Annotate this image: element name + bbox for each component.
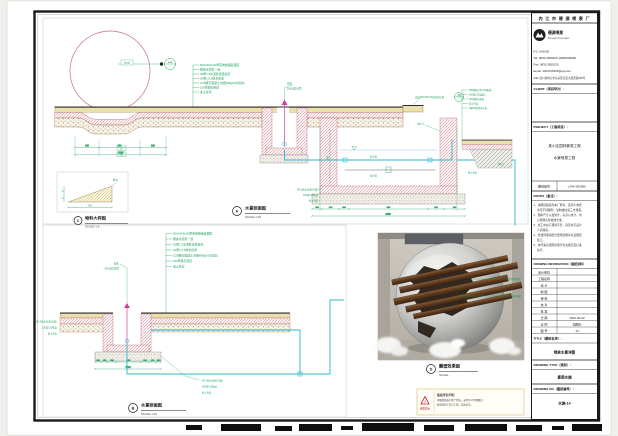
section-scale: SCALE 1:15	[245, 215, 261, 219]
supply-pipe-label: DN25给水管	[287, 87, 302, 91]
type-label: DRAWING TYPE（类别）:	[534, 362, 571, 367]
layer-label: 20厚1:2.5防水砂浆	[173, 247, 197, 252]
warning-heading: 版权所有声明：	[437, 393, 457, 397]
dim-value: 200	[88, 204, 93, 207]
warning-line2: 复制或用于其它工程，违者必究。	[437, 403, 473, 407]
layer-label: 30厚1:3水泥砂浆结合层	[200, 71, 230, 76]
title-block: 内 江 市 德 源 喷 泉 厂 德源喷泉 Deyuan Fountain P.C…	[532, 13, 598, 420]
info-row-value: 14	[575, 329, 579, 333]
dim-total: 1350	[385, 213, 391, 216]
note-line: 5、未尽事宜按国家现行有关规范及标准	[534, 243, 583, 247]
dim-value: 200	[85, 145, 90, 148]
radius-label: R700	[124, 62, 130, 65]
notes-label: NOTES（备注）:	[534, 193, 558, 198]
client-label: CLIENT（项目甲方）:	[534, 86, 565, 91]
info-row-label: 日 期	[541, 315, 548, 320]
dim-value: 620	[118, 145, 123, 148]
info-row-label: 制 图	[541, 289, 548, 294]
layer-label: 刷素水泥浆一道	[200, 67, 220, 72]
note-line: 人员联系。	[534, 228, 551, 232]
layer-label: C25细石混凝土(内配Φ8@200双向)	[200, 80, 245, 85]
info-row-label: 审 核	[541, 295, 548, 300]
warning-border	[417, 389, 524, 415]
note-line: 2、图中尺寸以毫米计，标高以米计，均	[534, 213, 583, 217]
section-letter: D	[430, 368, 433, 372]
warning-line1: 本图纸版权归本厂所有，未经许可不得翻印、	[437, 398, 485, 402]
warning-exclamation: !	[424, 399, 425, 404]
contact-fax: Fax: 0832-2659225	[534, 63, 559, 67]
photo-window	[405, 234, 463, 244]
contact-email: Email: 1023706325@qq.com	[534, 69, 572, 73]
nozzle-label: 喷头	[287, 82, 293, 86]
note-line: 施工。	[534, 238, 546, 242]
section-title: 水景剖面图	[245, 205, 266, 212]
section-letter: C	[77, 219, 80, 223]
dim-total: 1220	[125, 366, 131, 369]
info-label: DRAWING INFORMATION（图纸资料）:	[534, 261, 587, 266]
layer-label: 素土夯实	[173, 264, 185, 269]
deck-pavement-b	[60, 313, 290, 332]
warning-badge: 重要提示	[420, 407, 431, 411]
project-label: PROJECT（工程项目）:	[534, 124, 568, 129]
section-title: 水景剖面图	[141, 402, 162, 409]
info-row-value: 2022-09-02	[569, 316, 585, 320]
contact-addr: Add: 四川省内江市东兴区汉安大道西段260号	[534, 76, 586, 80]
info-row-label: 图 号	[541, 328, 548, 333]
no-value: 水施-14	[557, 401, 570, 406]
project-line2: 水景喷泉工程	[554, 155, 576, 160]
info-row-value: 如图示	[572, 321, 581, 326]
info-row-label: 工程名称	[538, 276, 550, 281]
layer-label: 素土夯实	[200, 89, 212, 94]
section-scale: SCALE	[439, 373, 449, 377]
info-row-label: 设 计	[541, 282, 548, 287]
company-header: 内 江 市 德 源 喷 泉 厂	[539, 15, 591, 21]
note-line: 1、本图纸版权为本厂所有，任何人未经	[534, 203, 583, 207]
note-line: 执行。	[534, 248, 546, 252]
pit-depth-dim: 550	[327, 155, 330, 160]
layer-label: 150厚碎石垫层	[200, 85, 219, 90]
logo-name-en: Deyuan Fountain	[548, 36, 570, 40]
section-title: 物料大样图	[85, 215, 106, 222]
no-label: DRAWING NO（图纸编号）:	[534, 386, 574, 391]
note-line: 以现场实际放线为准。	[534, 218, 565, 222]
logo-name: 德源喷泉	[547, 30, 563, 35]
marker-square	[160, 63, 163, 66]
layer-label: C25细石混凝土(内配Φ8@200双向)	[173, 253, 218, 258]
note-line: 3、施工中如与现场不符，请及时与设计	[534, 223, 583, 227]
layer-label: 20厚1:2.5防水砂浆	[200, 76, 224, 81]
info-row-label: 校 对	[541, 302, 548, 307]
info-row-label: 设计单位	[538, 269, 550, 274]
sculpture-photo: 304不锈钢锻打 耐候钢板 D 雕塑效果图 SCALE	[375, 233, 524, 377]
section-scale: SCALE 1:15	[141, 412, 157, 416]
dim-value: 200	[151, 145, 156, 148]
section-letter: B	[132, 407, 135, 411]
title-label: TITLE（图纸名称）:	[534, 336, 562, 341]
contact-tel: Tel: 0832-2659225 13680339690	[534, 56, 577, 60]
layer-label: 刷素水泥浆一道	[173, 236, 193, 241]
layer-label: 600×600×20厚花岗岩铺装面层	[200, 62, 239, 67]
section-letter: A	[236, 210, 239, 214]
type-value: 景观水施	[557, 375, 572, 380]
note-line: 4、管线预埋请结合现场及相关专业图纸	[534, 233, 583, 237]
layer-label: 600×600×20厚花岗岩铺装面层	[173, 231, 212, 236]
code-label: 图纸编号	[538, 184, 550, 189]
contact-pc: P.C: 641000	[534, 50, 550, 54]
layer-label: 150厚碎石垫层	[173, 258, 192, 263]
drawing-sheet-photo: R700 0.08 600×600×20厚花岗岩铺装面层 刷素水泥浆一道 30厚…	[0, 0, 618, 436]
section-title: 雕塑效果图	[439, 363, 460, 370]
layer-label: 30厚1:3水泥砂浆结合层	[173, 242, 203, 247]
note-line: 许可不得翻印、复制或向第三方泄露。	[534, 208, 584, 212]
info-row-label: 比 例	[541, 321, 548, 326]
supply-pipe-label: DN25给水管	[105, 267, 120, 271]
dim-total: 1020	[118, 152, 124, 155]
info-row-label: 批 准	[541, 308, 548, 313]
title-value: 喷泉水景详图	[554, 350, 576, 355]
project-line1: 某小区园林景观工程	[548, 143, 581, 148]
warning-box: ! 重要提示 版权所有声明： 本图纸版权归本厂所有，未经许可不得翻印、 复制或用…	[417, 389, 524, 415]
code-value: LPW-093990	[568, 185, 586, 189]
nozzle-label: 喷头	[114, 262, 120, 266]
